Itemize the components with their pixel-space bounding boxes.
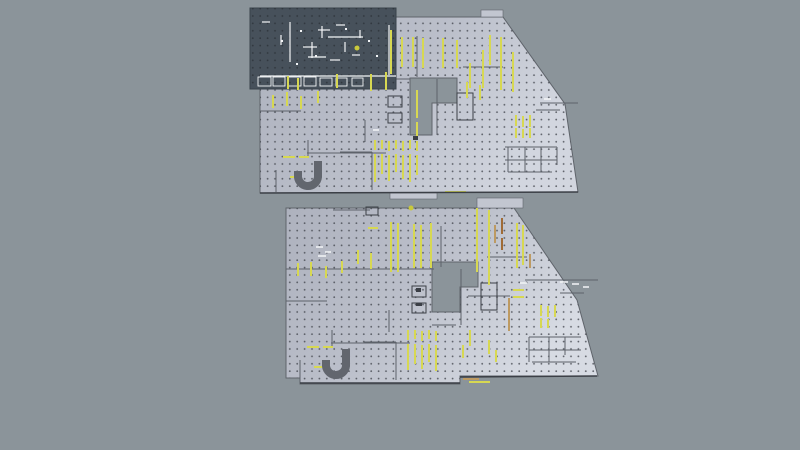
app-viewport[interactable] (0, 0, 800, 450)
yellow-dot-marker (409, 206, 414, 211)
viewport-canvas[interactable] (0, 0, 800, 450)
selection-grid-dots (250, 8, 396, 89)
floor-annexes (477, 198, 523, 208)
selection-yellow-dot (355, 46, 360, 51)
selection-overlay[interactable] (250, 8, 396, 91)
floor-edge-lines (260, 192, 578, 193)
dark-fixtures (413, 136, 418, 140)
